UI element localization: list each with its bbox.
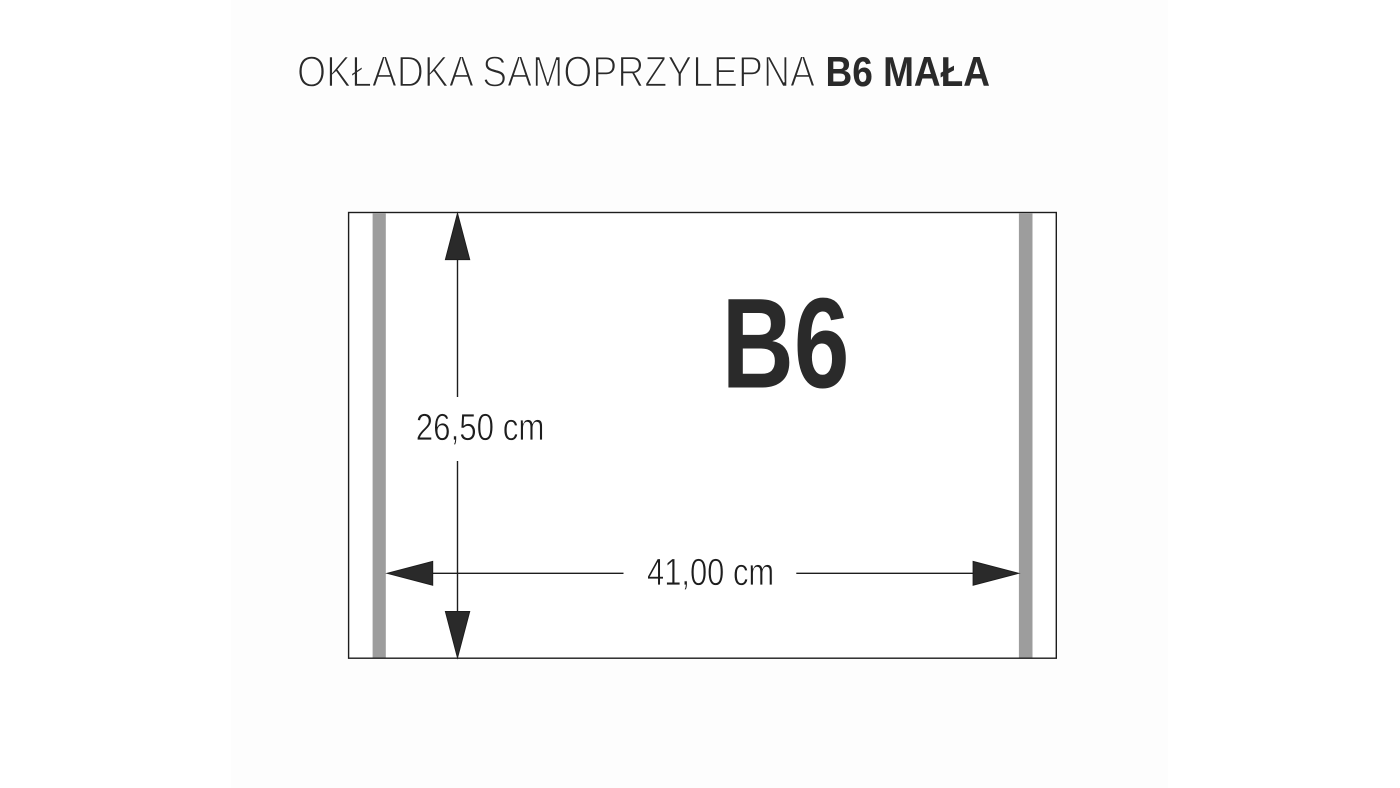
svg-text:B6 MAŁA: B6 MAŁA: [826, 48, 991, 95]
svg-text:B6: B6: [722, 272, 850, 415]
svg-text:26,50 cm: 26,50 cm: [416, 406, 545, 449]
svg-text:41,00 cm: 41,00 cm: [647, 551, 774, 594]
svg-text:OKŁADKA SAMOPRZYLEPNA: OKŁADKA SAMOPRZYLEPNA: [297, 48, 815, 96]
